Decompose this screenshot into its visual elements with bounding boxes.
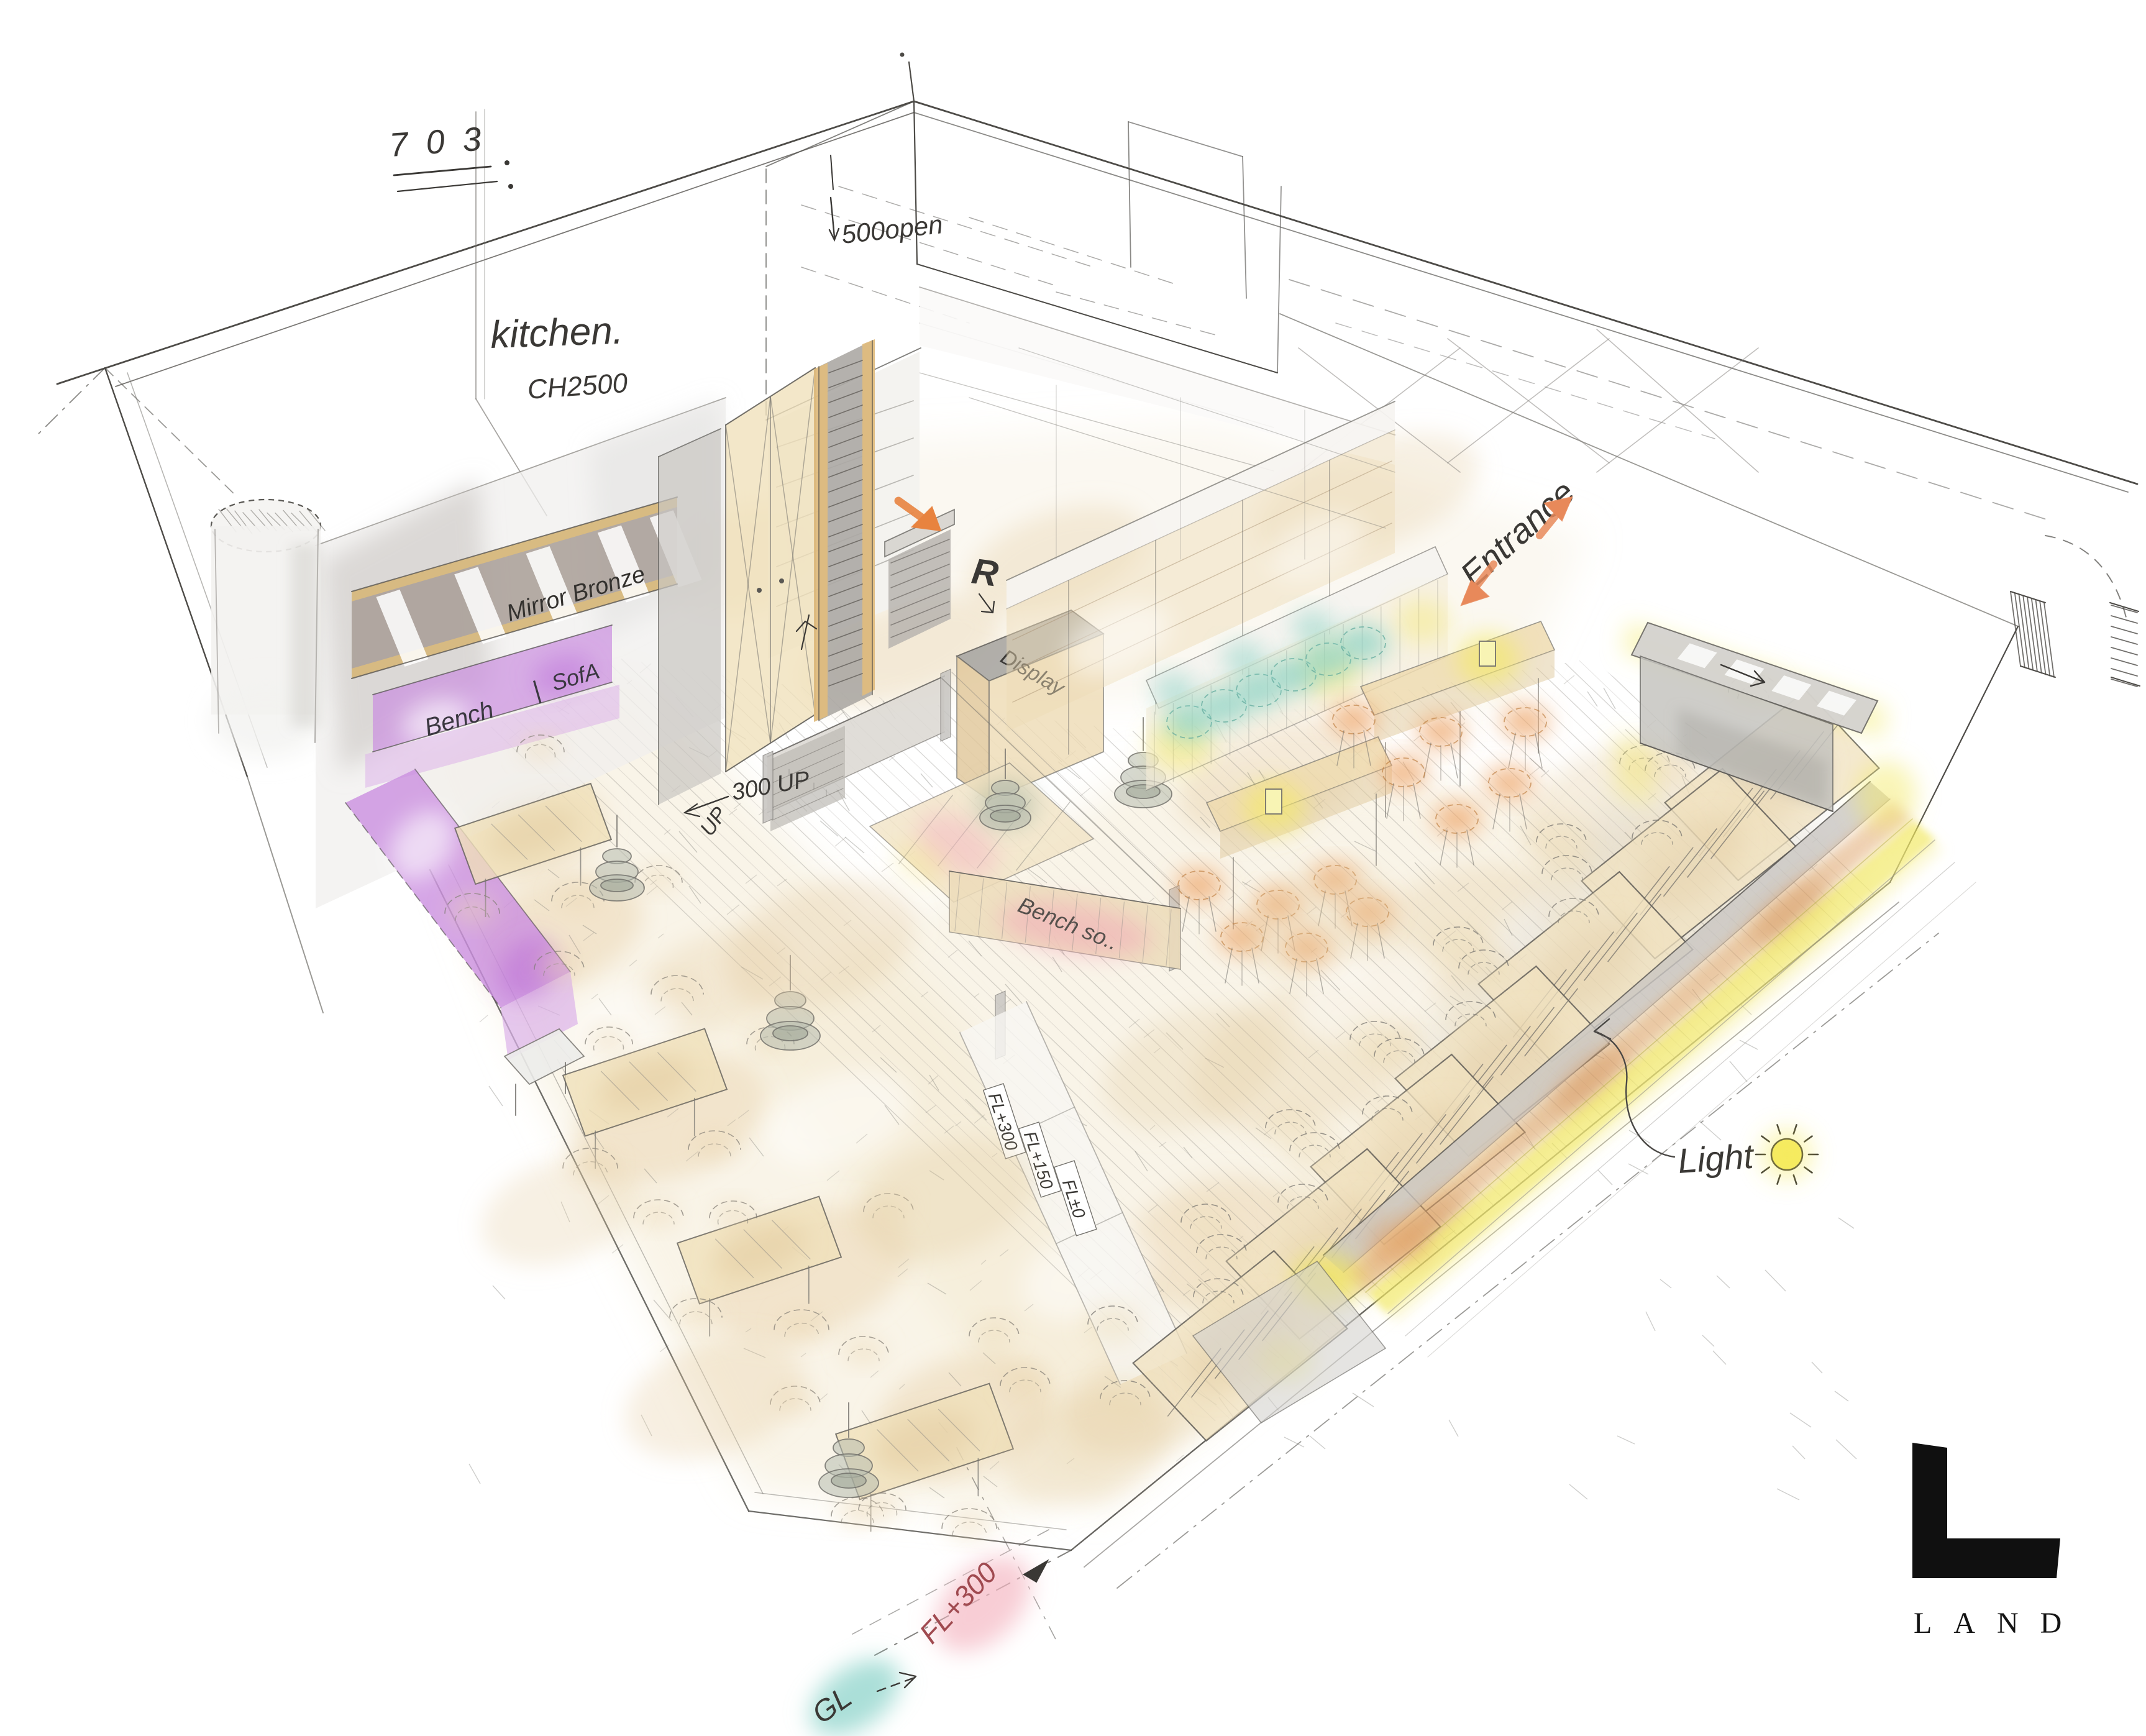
svg-text:LAND: LAND xyxy=(1914,1607,2083,1640)
svg-text:Light: Light xyxy=(1676,1136,1756,1180)
svg-text:kitchen.: kitchen. xyxy=(490,309,624,357)
svg-text:7 0 3: 7 0 3 xyxy=(388,120,487,164)
